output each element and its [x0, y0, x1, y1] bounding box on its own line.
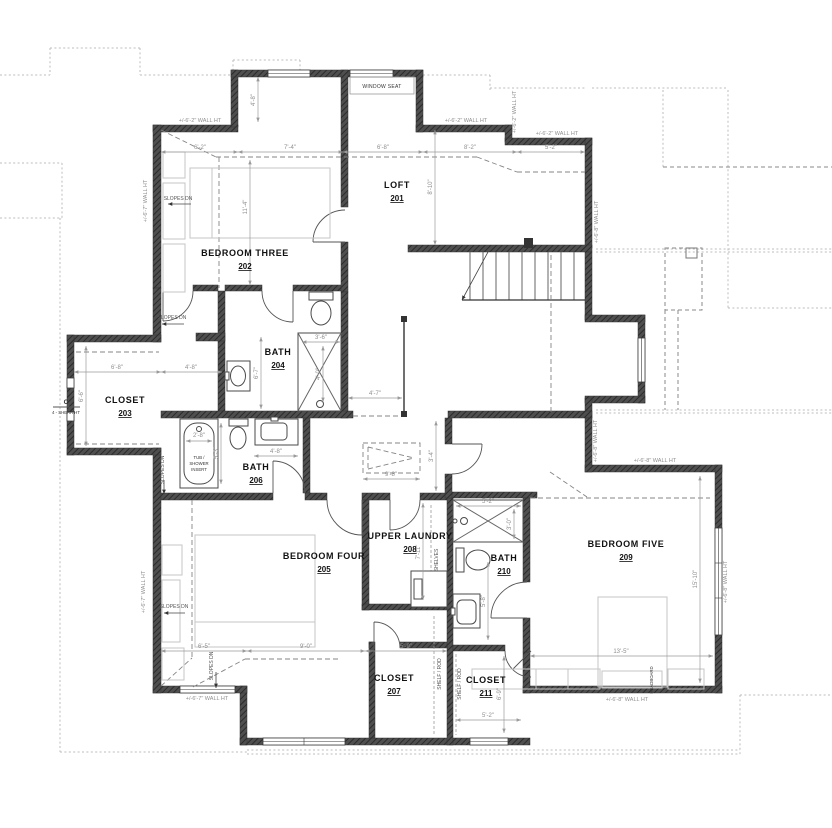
room-label-closet-211: CLOSET — [466, 675, 506, 685]
shelf-rod-label: SHELF / ROD — [437, 658, 443, 690]
room-number-bath-204: 204 — [271, 361, 285, 370]
slopes-dn-label: SLOPES DN — [164, 196, 193, 202]
dim-label: 6'-9" — [497, 688, 503, 700]
wall-height-label: +/-6'-8" WALL HT — [594, 200, 600, 243]
window — [180, 686, 235, 693]
dresser-icon — [163, 244, 185, 292]
room-number-bedroom-five: 209 — [619, 553, 633, 562]
dim-label: 6'-8" — [111, 365, 123, 371]
fixtures — [180, 292, 523, 628]
room-label-bath-210: BATH — [491, 553, 518, 563]
headboard-label: HEADBOARD — [649, 666, 654, 693]
dim-label: 6'-7" — [254, 367, 260, 379]
interior-walls — [161, 70, 537, 745]
wall-height-label: +/-6'-2" WALL HT — [512, 90, 518, 133]
chimney-outline — [665, 248, 702, 410]
window — [638, 338, 645, 382]
room-number-bath-206: 206 — [249, 476, 263, 485]
dim-label: 5'-9" — [400, 644, 412, 650]
dresser-icon — [162, 580, 180, 642]
dresser-icon — [163, 183, 185, 239]
tub-label: TUB / — [194, 455, 206, 460]
wall-height-label: +/-6'-2" WALL HT — [179, 118, 222, 124]
dim-label: 5'-2" — [545, 145, 557, 151]
stair-direction-arrow — [462, 252, 488, 300]
dim-label: 4'-8" — [270, 449, 282, 455]
door-swing — [262, 291, 293, 322]
room-label-bath-204: BATH — [265, 347, 292, 357]
sink-icon — [451, 594, 480, 628]
ceiling-break-lines — [76, 130, 710, 735]
shelf-rod-label: SHELF / ROD — [457, 668, 463, 700]
room-label-closet-207: CLOSET — [374, 673, 414, 683]
room-number-bedroom-four: 205 — [317, 565, 331, 574]
wall-height-label: +/-6'-7" WALL HT — [141, 570, 147, 613]
dim-label: 5'-2" — [482, 499, 494, 505]
dim-label: 8'-10" — [428, 179, 434, 194]
door-swing — [313, 210, 345, 242]
room-label-bedroom-three: BEDROOM THREE — [201, 248, 289, 258]
window — [715, 528, 722, 635]
door-swing — [327, 500, 362, 535]
dim-label: 2'-8" — [193, 433, 205, 439]
attic-access-hatch — [363, 443, 420, 473]
floor-plan-drawing: 6'-2" 7'-4" 6'-8" 8'-2" 5'-2" 4'-8" 11'-… — [0, 0, 832, 828]
dim-label: 13'-5" — [613, 649, 628, 655]
newel-post — [524, 238, 533, 248]
floor-plan-sheet: 6'-2" 7'-4" 6'-8" 8'-2" 5'-2" 4'-8" 11'-… — [0, 0, 832, 828]
window-seat-label: WINDOW SEAT — [362, 84, 401, 90]
dim-label: 5'-2" — [482, 713, 494, 719]
nightstand-icon — [162, 545, 182, 575]
dim-label: 11'-4" — [243, 200, 249, 215]
shelves-label: SHELVES — [434, 548, 440, 571]
toilet-icon — [309, 292, 333, 325]
section-marker: C 4 - SHEAR HT — [52, 399, 80, 415]
windows — [67, 70, 722, 745]
window — [268, 70, 310, 77]
room-number-bath-210: 210 — [497, 567, 511, 576]
wall-height-label: +/-6'-7" WALL HT — [143, 179, 149, 222]
dimension-lines — [74, 77, 713, 733]
tub-label: SHOWER — [189, 461, 208, 466]
tub-label: INSERT — [191, 467, 207, 472]
dim-label: 5'-3" — [214, 447, 220, 459]
dim-label: 15'-10" — [693, 570, 699, 589]
room-label-closet-203: CLOSET — [105, 395, 145, 405]
wall-height-label: +/-6'-2" WALL HT — [536, 131, 579, 137]
wall-height-label: +/-6'-7" WALL HT — [186, 696, 229, 702]
door-swing — [452, 444, 482, 474]
room-number-closet-207: 207 — [387, 687, 401, 696]
slopes-dn-label: SLOPES DN — [209, 651, 215, 680]
section-marker-ref: 4 - SHEAR HT — [52, 410, 80, 415]
toilet-icon — [456, 548, 490, 572]
dim-label: 3'-6" — [315, 335, 327, 341]
sink-icon — [225, 361, 250, 391]
wall-height-label: +/-6'-2" WALL HT — [445, 118, 488, 124]
window — [470, 738, 508, 745]
room-number-closet-211: 211 — [480, 689, 493, 698]
door-swing — [390, 500, 420, 530]
dim-label: 6'-6" — [79, 390, 85, 402]
room-label-loft: LOFT — [384, 180, 410, 190]
dim-label: 7'-4" — [284, 145, 296, 151]
wall-height-label: +/-6'-8" WALL HT — [606, 697, 649, 703]
door-swing — [374, 622, 400, 648]
dim-label: 6'-5" — [198, 644, 210, 650]
dim-label: 3'-4" — [429, 450, 435, 462]
section-marker-letter: C — [64, 399, 69, 406]
dim-label: 4'-8" — [251, 94, 257, 106]
door-swing — [491, 582, 527, 618]
dim-label: 4'-7" — [369, 391, 381, 397]
toilet-icon — [229, 419, 248, 449]
room-label-upper-laundry: UPPER LAUNDRY — [368, 531, 453, 541]
dim-label: 3'-0" — [507, 518, 513, 530]
dim-label: 4'-8" — [185, 365, 197, 371]
slopes-dn-label: SLOPES DN — [160, 604, 189, 610]
slopes-dn-label: SLOPES DN — [160, 455, 166, 484]
exterior-walls — [67, 70, 722, 745]
wall-height-label: +/-6'-8" WALL HT — [634, 458, 677, 464]
room-number-upper-laundry: 208 — [403, 545, 417, 554]
nightstand-icon — [163, 152, 185, 178]
bed-icon — [190, 168, 330, 238]
dim-label: 5'-8" — [481, 595, 487, 607]
wall-height-label: +/-6'-8" WALL HT — [593, 419, 599, 462]
dim-label: 6'-8" — [377, 145, 389, 151]
washer-icon — [411, 571, 447, 607]
room-number-bedroom-three: 202 — [238, 262, 252, 271]
window — [263, 738, 345, 745]
dim-label: 7'-11" — [416, 545, 422, 560]
loft-railing — [401, 316, 407, 417]
room-number-loft: 201 — [390, 194, 404, 203]
dim-label: 4'-0" — [316, 368, 322, 380]
room-label-bedroom-five: BEDROOM FIVE — [588, 539, 665, 549]
bed-icon — [598, 597, 667, 688]
bathtub-icon — [180, 419, 218, 488]
wall-height-label: +/-6'-8" WALL HT — [723, 560, 729, 603]
dim-label: 9'-0" — [300, 644, 312, 650]
room-label-bedroom-four: BEDROOM FOUR — [283, 551, 365, 561]
window — [350, 70, 393, 77]
sink-icon — [255, 417, 298, 445]
dim-label: 6'-2" — [194, 145, 206, 151]
dim-label: 9'-8" — [385, 472, 397, 478]
dim-label: 8'-2" — [464, 145, 476, 151]
room-label-bath-206: BATH — [243, 462, 270, 472]
door-swing — [273, 461, 305, 493]
slopes-dn-label: SLOPES DN — [158, 315, 187, 321]
room-number-closet-203: 203 — [118, 409, 132, 418]
